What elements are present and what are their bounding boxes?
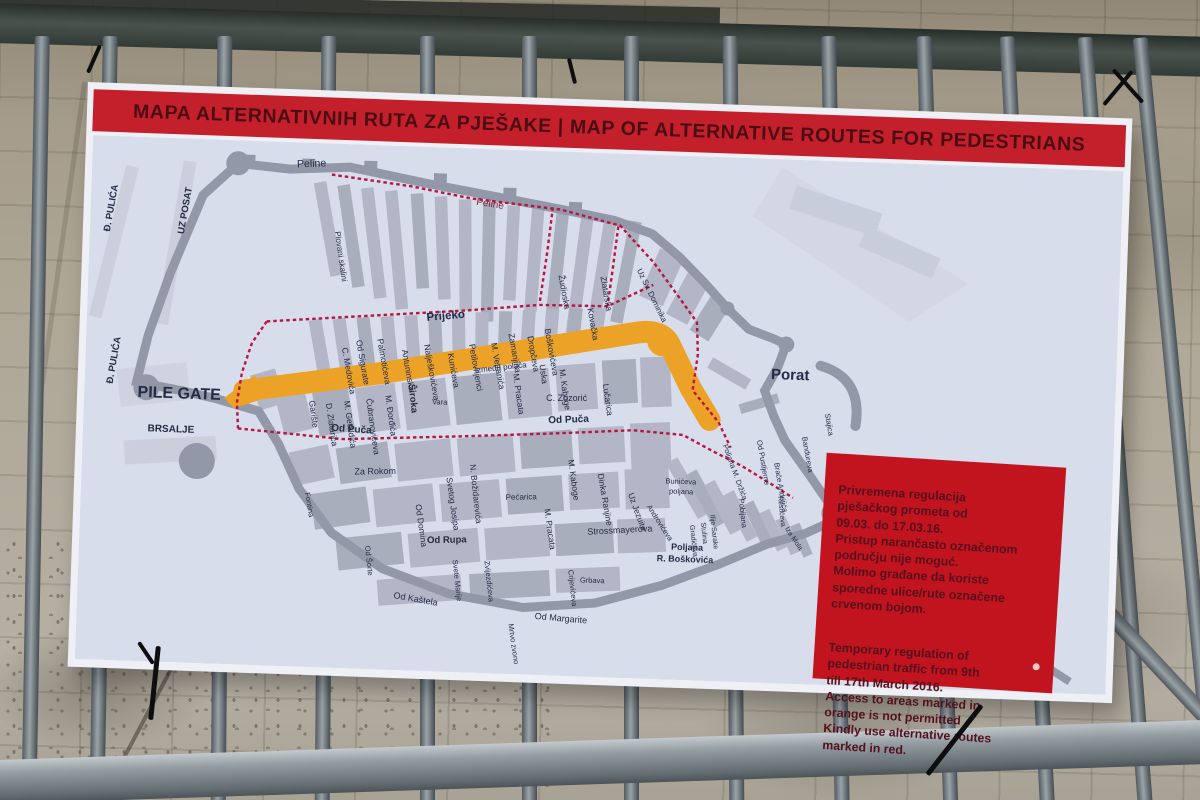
street-label: Od Puča xyxy=(548,414,589,426)
street-label: Bunićeva xyxy=(665,476,697,486)
notice-english: Temporary regulation of pedestrian traff… xyxy=(822,639,1045,766)
street-label: PILE GATE xyxy=(137,384,221,404)
street-label: Pećarica xyxy=(506,492,538,502)
notice-croatian: Privremena regulacija pješačkog prometa … xyxy=(831,482,1055,625)
notice-box: Privremena regulacija pješačkog prometa … xyxy=(813,453,1067,694)
street-label: BRSALJE xyxy=(147,423,194,436)
street-label: poljana xyxy=(669,487,694,497)
street-label: Vara xyxy=(432,397,448,407)
street-label: C. Zuzorić xyxy=(546,393,588,403)
street-label: Peline xyxy=(297,157,327,170)
street-label: Od Rupa xyxy=(427,534,467,546)
street-label: Za Rokom xyxy=(354,466,396,477)
street-label: Grbava xyxy=(580,575,606,585)
map-sign-board: MAPA ALTERNATIVNIH RUTA ZA PJEŠAKE | MAP… xyxy=(68,82,1133,703)
street-label: Porat xyxy=(771,366,810,384)
street-label: Poljana xyxy=(671,542,704,553)
street-label: R. Boškovića xyxy=(657,553,715,565)
photo-scene: MAPA ALTERNATIVNIH RUTA ZA PJEŠAKE | MAP… xyxy=(0,0,1200,800)
